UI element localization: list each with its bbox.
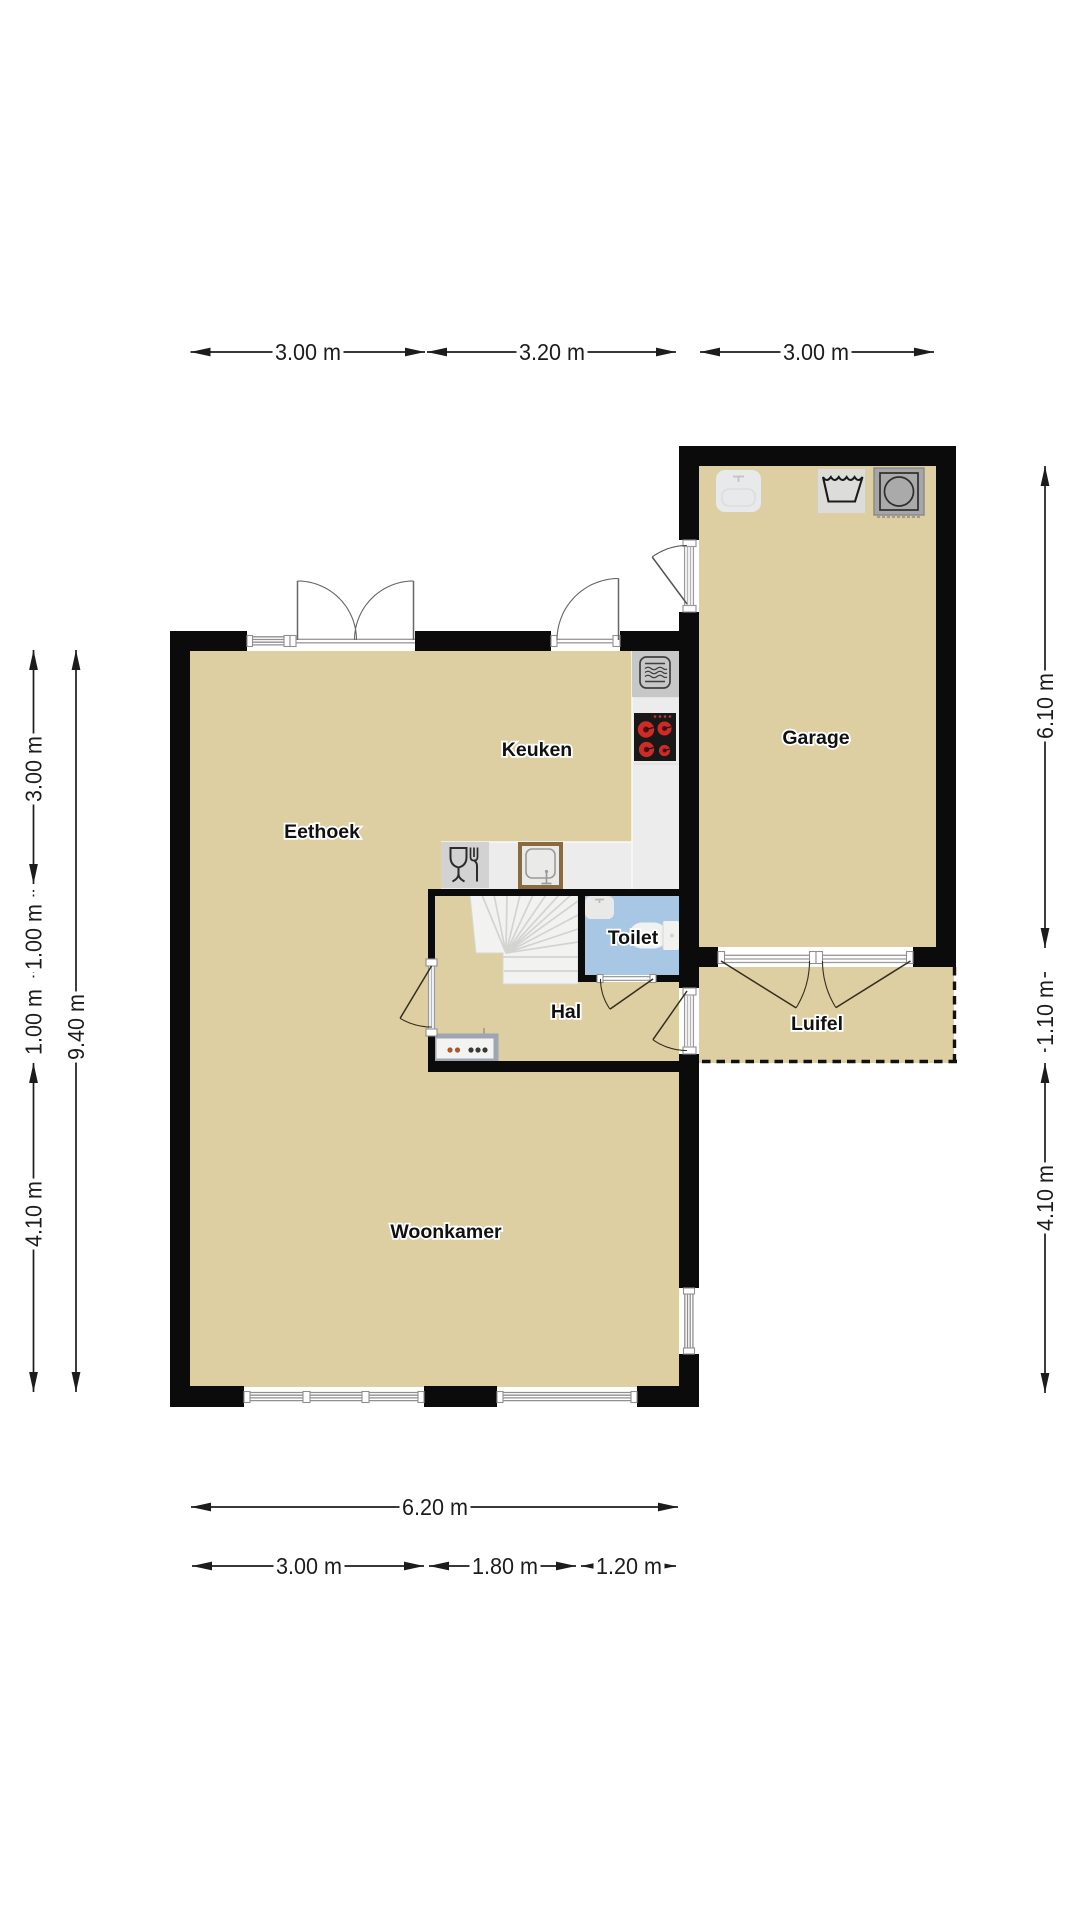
svg-text:Toilet: Toilet: [608, 927, 659, 949]
svg-text:1.20 m: 1.20 m: [596, 1553, 662, 1579]
svg-text:6.10 m: 6.10 m: [1032, 673, 1058, 739]
svg-text:6.20 m: 6.20 m: [402, 1494, 468, 1520]
svg-text:4.10 m: 4.10 m: [1032, 1165, 1058, 1231]
svg-text:1.00 m: 1.00 m: [21, 904, 47, 970]
svg-text:Garage: Garage: [782, 727, 849, 749]
svg-text:Luifel: Luifel: [791, 1013, 843, 1035]
svg-text:3.00 m: 3.00 m: [783, 339, 849, 365]
svg-text:3.00 m: 3.00 m: [275, 339, 341, 365]
svg-text:Keuken: Keuken: [502, 739, 572, 761]
svg-text:Hal: Hal: [551, 1001, 581, 1023]
svg-text:4.10 m: 4.10 m: [21, 1181, 47, 1247]
svg-text:9.40 m: 9.40 m: [63, 994, 89, 1060]
svg-text:1.80 m: 1.80 m: [472, 1553, 538, 1579]
svg-text:3.00 m: 3.00 m: [21, 736, 47, 802]
svg-text:3.20 m: 3.20 m: [519, 339, 585, 365]
svg-text:3.00 m: 3.00 m: [276, 1553, 342, 1579]
svg-text:Eethoek: Eethoek: [284, 821, 360, 843]
svg-text:Woonkamer: Woonkamer: [390, 1221, 502, 1243]
svg-text:1.00 m: 1.00 m: [21, 989, 47, 1055]
svg-text:1.10 m: 1.10 m: [1032, 980, 1058, 1046]
